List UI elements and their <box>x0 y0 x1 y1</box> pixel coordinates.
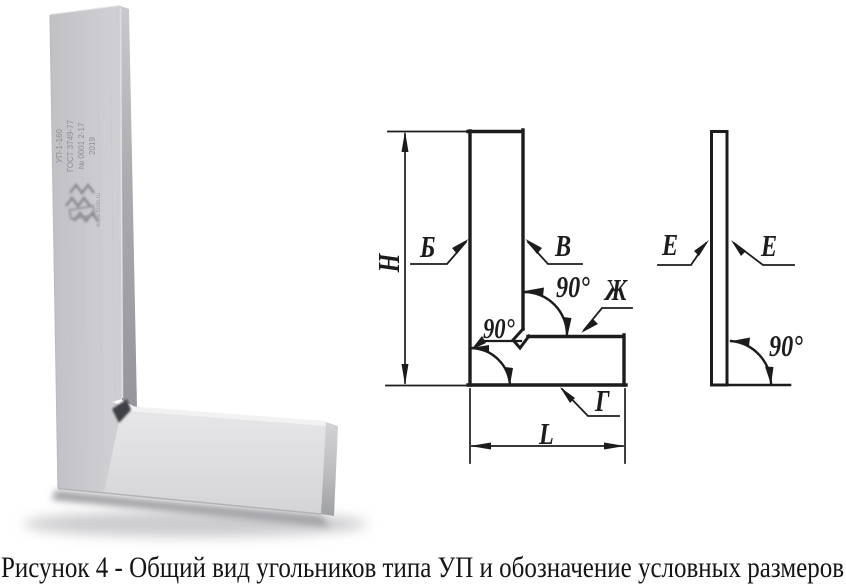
svg-text:Е: Е <box>661 228 678 263</box>
svg-text:В: В <box>554 229 571 264</box>
svg-text:90°: 90° <box>769 329 803 364</box>
svg-text:90°: 90° <box>483 312 515 344</box>
svg-text:90°: 90° <box>556 270 590 305</box>
svg-text:Н: Н <box>372 252 407 273</box>
svg-text:Г: Г <box>594 384 610 419</box>
svg-text:Ж: Ж <box>603 273 628 308</box>
svg-text:ГОСТ 3749-77: ГОСТ 3749-77 <box>66 119 75 172</box>
svg-text:№ 0001 2-17: № 0001 2-17 <box>77 122 86 169</box>
svg-text:www.tools.ru: www.tools.ru <box>96 193 102 228</box>
svg-text:L: L <box>538 417 554 452</box>
svg-text:Б: Б <box>419 230 435 265</box>
svg-text:2019: 2019 <box>88 137 97 155</box>
svg-text:УП-1-160: УП-1-160 <box>55 128 64 163</box>
svg-text:Е: Е <box>760 229 777 264</box>
